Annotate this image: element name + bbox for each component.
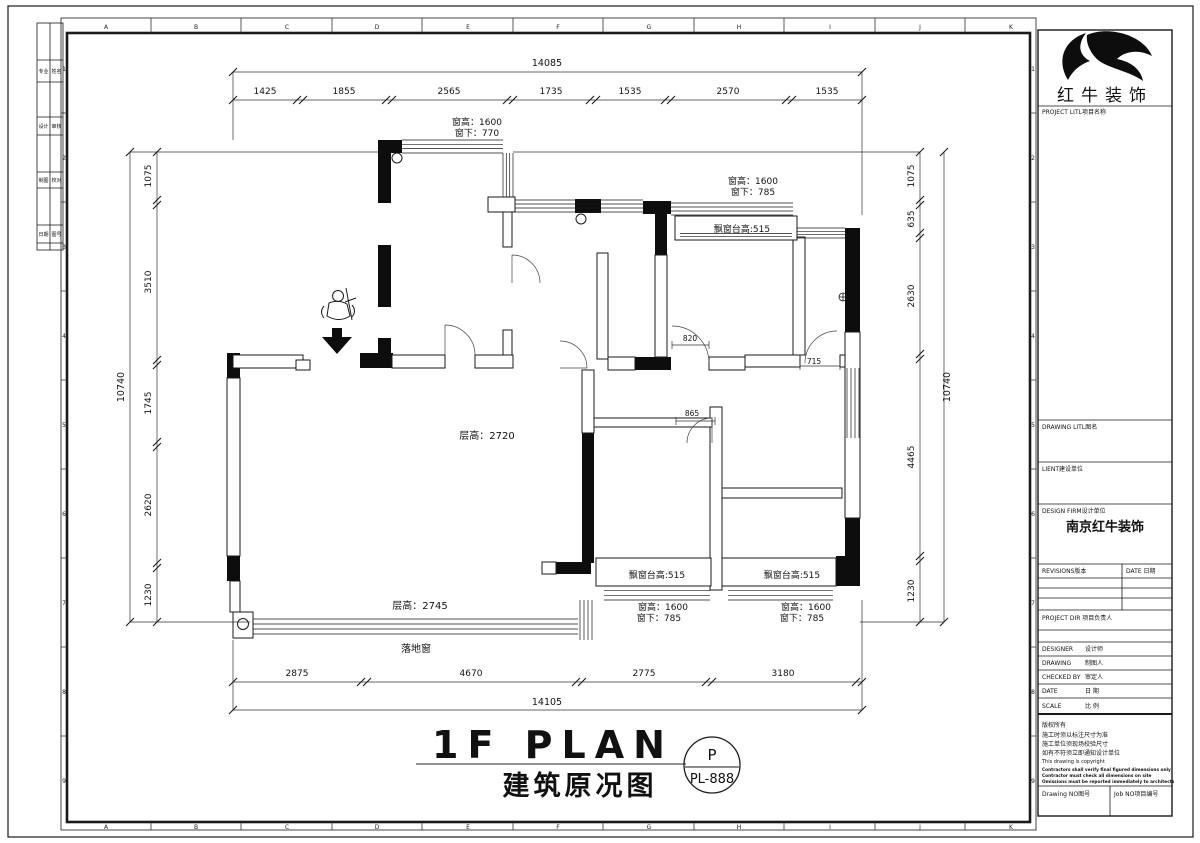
svg-text:3180: 3180 — [772, 669, 795, 679]
dim-820: 820 — [683, 334, 698, 343]
dim-715: 715 — [807, 357, 822, 366]
design-firm-label: DESIGN FIRM设计单位 — [1042, 507, 1106, 515]
dim-left-total: 10740 — [116, 372, 127, 402]
svg-text:6: 6 — [1031, 511, 1035, 518]
drain-symbol — [839, 293, 847, 301]
svg-text:D: D — [375, 24, 380, 31]
dim-top-total: 14085 — [532, 58, 562, 69]
badge-code: PL-888 — [690, 772, 734, 787]
copyright-block: 版权所有 施工时须以标注尺寸为准 施工单位须现场校验尺寸 如有不符须立即通知设计… — [1041, 721, 1175, 785]
window-note-top-right-2: 窗下：785 — [731, 186, 775, 198]
svg-text:G: G — [647, 824, 652, 831]
svg-text:5: 5 — [62, 422, 66, 429]
svg-text:2630: 2630 — [907, 284, 917, 307]
svg-text:1425: 1425 — [254, 87, 277, 97]
svg-text:1230: 1230 — [907, 579, 917, 602]
svg-text:I: I — [829, 24, 831, 31]
sheet-title-en: 1F PLAN — [432, 723, 674, 767]
svg-text:F: F — [556, 824, 560, 831]
date-label: DATE — [1042, 688, 1058, 695]
svg-text:3: 3 — [1031, 244, 1035, 251]
title-block: 红牛装饰 PROJECT LITL项目名称 DRAWING LITL图名 LIE… — [1038, 30, 1175, 816]
svg-text:制图: 制图 — [38, 177, 48, 184]
svg-text:5: 5 — [1031, 422, 1035, 429]
svg-text:1: 1 — [1031, 66, 1035, 73]
svg-text:J: J — [918, 824, 921, 831]
window-note-bed3-2: 窗下：785 — [780, 612, 824, 624]
svg-text:This drawing is copyright: This drawing is copyright — [1041, 759, 1105, 765]
drawing-no-label: Drawing NO图号 — [1042, 791, 1090, 798]
client-label: LIENT建设单位 — [1042, 465, 1083, 473]
window-note-bed2-2: 窗下：785 — [637, 612, 681, 624]
company-logo-icon — [1062, 31, 1152, 81]
svg-text:7: 7 — [62, 600, 66, 607]
svg-text:H: H — [737, 24, 742, 31]
scale-cn: 比 例 — [1085, 702, 1099, 710]
svg-text:Contractor must check all dime: Contractor must check all dimensions on … — [1042, 773, 1151, 779]
svg-text:6: 6 — [62, 511, 66, 518]
svg-text:J: J — [918, 24, 921, 31]
svg-text:7: 7 — [1031, 600, 1035, 607]
svg-text:施工时须以标注尺寸为准: 施工时须以标注尺寸为准 — [1042, 731, 1108, 739]
window-note-bed3-1: 窗高：1600 — [781, 601, 831, 613]
svg-text:2565: 2565 — [438, 87, 461, 97]
dim-865: 865 — [685, 409, 700, 418]
revision-date-label: DATE 日期 — [1126, 567, 1156, 575]
svg-text:1230: 1230 — [144, 583, 154, 606]
svg-text:校对: 校对 — [51, 177, 61, 184]
checked-by-cn: 审定人 — [1085, 673, 1103, 681]
svg-text:K: K — [1009, 24, 1014, 31]
badge-letter: P — [707, 746, 716, 764]
svg-text:H: H — [737, 824, 742, 831]
svg-text:C: C — [285, 824, 289, 831]
designer-label: DESIGNER — [1042, 646, 1073, 653]
svg-text:4465: 4465 — [907, 446, 917, 469]
dim-right-total: 10740 — [942, 372, 953, 402]
floor-height-main: 层高：2720 — [459, 429, 514, 442]
svg-text:专业: 专业 — [38, 68, 48, 75]
designer-cn: 设计师 — [1085, 645, 1103, 653]
signature-strip — [37, 23, 63, 250]
drawing-title-label: DRAWING LITL图名 — [1042, 423, 1097, 431]
project-dir-label: PROJECT DIR 项目负责人 — [1042, 614, 1112, 622]
checked-by-label: CHECKED BY — [1042, 674, 1081, 681]
svg-text:8: 8 — [1031, 689, 1035, 696]
svg-text:1535: 1535 — [619, 87, 642, 97]
revisions-label: REVISIONS版本 — [1042, 567, 1086, 575]
svg-text:1735: 1735 — [540, 87, 563, 97]
design-firm-name: 南京红牛装饰 — [1066, 519, 1144, 535]
drawing-sheet: ABCDEFGHIJK ABCDEFGHIJK 123456789 123456… — [0, 0, 1200, 843]
svg-text:B: B — [194, 824, 198, 831]
svg-text:B: B — [194, 24, 198, 31]
svg-text:1855: 1855 — [333, 87, 356, 97]
dim-bottom-total: 14105 — [532, 697, 562, 708]
job-no-label: Job NO项目编号 — [1113, 790, 1158, 798]
svg-text:E: E — [466, 24, 470, 31]
svg-text:4: 4 — [1031, 333, 1035, 340]
svg-text:施工单位须现场校验尺寸: 施工单位须现场校验尺寸 — [1042, 740, 1108, 748]
svg-text:姓名: 姓名 — [51, 68, 61, 75]
svg-text:G: G — [647, 24, 652, 31]
floor-plan-canvas: ABCDEFGHIJK ABCDEFGHIJK 123456789 123456… — [0, 0, 1200, 843]
sheet-title: 1F PLAN 建筑原况图 P PL-888 — [416, 723, 740, 802]
svg-text:4670: 4670 — [460, 669, 483, 679]
floor-height-balcony: 层高：2745 — [392, 599, 447, 612]
svg-text:A: A — [104, 24, 109, 31]
svg-text:1535: 1535 — [816, 87, 839, 97]
svg-text:F: F — [556, 24, 560, 31]
svg-text:2875: 2875 — [286, 669, 309, 679]
window-note-top-right-1: 窗高：1600 — [728, 175, 778, 187]
svg-text:C: C — [285, 24, 289, 31]
svg-text:2620: 2620 — [144, 493, 154, 516]
floor-window-label: 落地窗 — [401, 642, 431, 655]
svg-text:635: 635 — [907, 210, 917, 227]
svg-text:4: 4 — [62, 333, 66, 340]
window-note-top-left-1: 窗高：1600 — [452, 116, 502, 128]
entry-person-symbol — [322, 288, 357, 320]
svg-text:版权所有: 版权所有 — [1042, 721, 1066, 729]
svg-text:如有不符须立即通知设计单位: 如有不符须立即通知设计单位 — [1042, 749, 1120, 757]
svg-text:设计: 设计 — [38, 123, 48, 130]
svg-text:1075: 1075 — [144, 165, 154, 188]
window-note-top-left-2: 窗下：770 — [455, 127, 499, 139]
grid-letters-top: ABCDEFGHIJK — [104, 24, 1014, 31]
entry-arrow-icon — [322, 328, 352, 354]
sheet-title-cn: 建筑原况图 — [503, 770, 658, 802]
svg-text:3510: 3510 — [144, 270, 154, 293]
svg-text:E: E — [466, 824, 470, 831]
svg-text:2570: 2570 — [717, 87, 740, 97]
svg-text:Contractors shall verify final: Contractors shall verify final figured d… — [1042, 767, 1171, 773]
project-label: PROJECT LITL项目名称 — [1042, 108, 1106, 116]
svg-text:I: I — [829, 824, 831, 831]
drawing-by-cn: 制图人 — [1085, 659, 1103, 667]
svg-text:2: 2 — [1031, 155, 1035, 162]
drawing-by-label: DRAWING — [1042, 660, 1072, 667]
svg-text:9: 9 — [62, 778, 66, 785]
svg-text:D: D — [375, 824, 380, 831]
svg-text:8: 8 — [62, 689, 66, 696]
scale-label: SCALE — [1042, 703, 1061, 710]
svg-text:9: 9 — [1031, 778, 1035, 785]
svg-text:图号: 图号 — [51, 232, 61, 238]
company-name: 红牛装饰 — [1057, 86, 1153, 106]
date-cn: 日 期 — [1085, 687, 1099, 695]
bay-sill-note-2: 飘窗台高:515 — [629, 569, 685, 581]
grid-ticks — [61, 18, 1036, 830]
svg-text:审核: 审核 — [51, 123, 61, 130]
column-circle-symbols — [238, 153, 587, 630]
svg-text:Omissions must be reported imm: Omissions must be reported immediately t… — [1042, 779, 1175, 785]
svg-text:日期: 日期 — [38, 232, 48, 238]
bay-sill-note-3: 飘窗台高:515 — [764, 569, 820, 581]
svg-text:1075: 1075 — [907, 165, 917, 188]
grid-numbers-right: 123456789 — [1031, 66, 1035, 785]
svg-text:2775: 2775 — [633, 669, 656, 679]
svg-text:1745: 1745 — [144, 392, 154, 415]
window-note-bed2-1: 窗高：1600 — [638, 601, 688, 613]
bay-sill-note-1: 飘窗台高:515 — [714, 223, 770, 235]
